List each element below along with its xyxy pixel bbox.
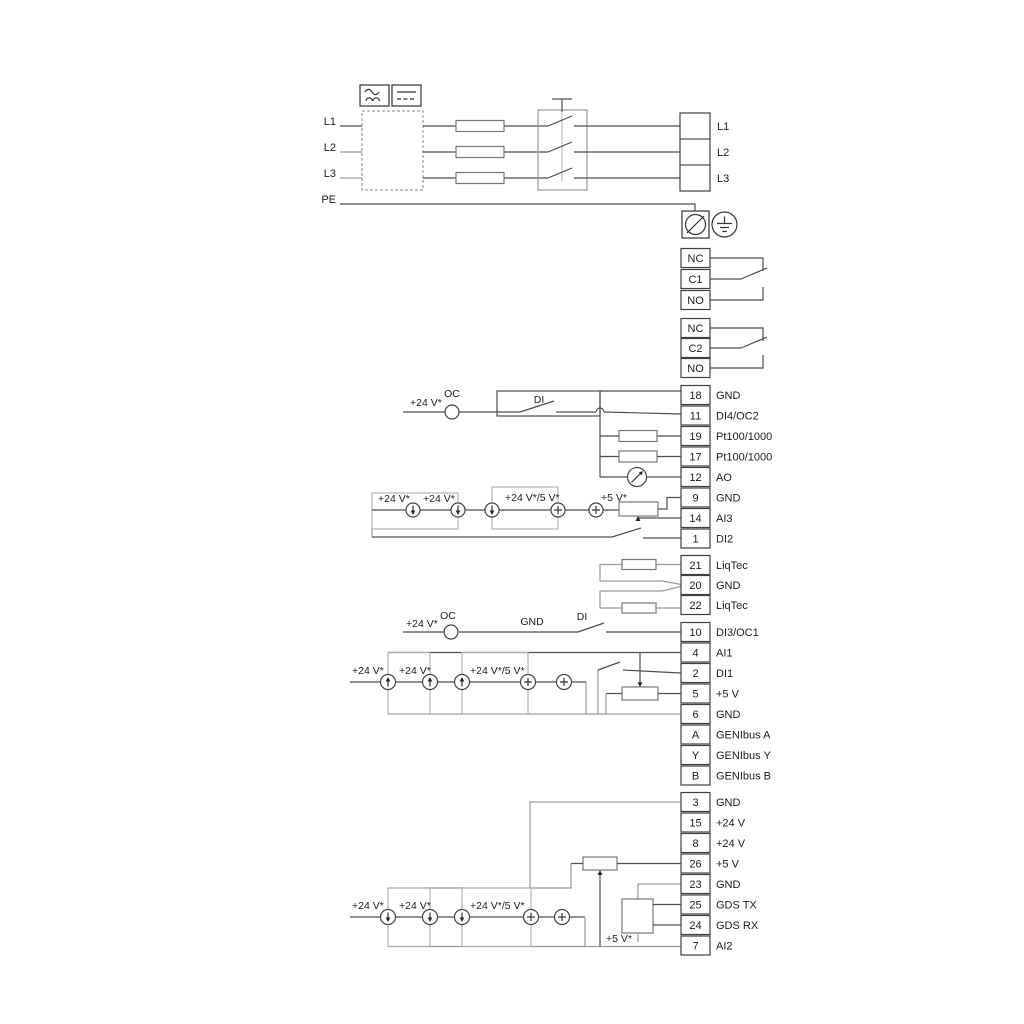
pin-label: +24 V	[716, 838, 746, 850]
pin-number: A	[692, 730, 700, 742]
fuse-l1	[456, 121, 504, 132]
current-source-icon	[381, 675, 396, 690]
screw-slot	[687, 216, 704, 233]
relay1-no-label: NO	[687, 295, 704, 307]
pin-label: AI3	[716, 513, 733, 525]
current-sink-icon	[451, 503, 465, 517]
io2-terminal-block: 10DI3/OC1 4AI1 2DI1 5+5 V 6GND AGENIbus …	[681, 623, 771, 786]
pin-label: LiqTec	[716, 560, 748, 572]
voltage-source-icon	[555, 910, 570, 925]
pin-label: GND	[716, 390, 741, 402]
pin-number: 11	[690, 411, 701, 423]
pin-number: 17	[689, 452, 701, 464]
pin-number: 2	[692, 668, 698, 680]
relay1-no-wire	[710, 287, 763, 300]
plus5v-label: +5 V*	[606, 933, 632, 945]
relay2-nc-label: NC	[688, 323, 704, 335]
pin-number: 5	[692, 689, 698, 701]
pin-label: GENIbus B	[716, 771, 771, 783]
pin-label: GENIbus Y	[716, 750, 771, 762]
earth-icon	[712, 212, 737, 237]
ai2-sensor-options: +24 V* +24 V* +24 V*/5 V*	[350, 857, 681, 947]
pin-label: DI1	[716, 668, 733, 680]
di2-switch-blade	[612, 528, 641, 537]
pin-number: 22	[689, 600, 701, 612]
power-input-section: L1 L2 L3 PE	[321, 85, 737, 238]
relay-1-block: NC C1 NO	[681, 249, 767, 310]
pin-number: 20	[689, 580, 701, 592]
current-sink-icon	[406, 503, 420, 517]
ac-hump-icon	[366, 98, 379, 101]
pin-number: 7	[692, 941, 698, 953]
oc-label: OC	[440, 610, 456, 622]
pin-label: GND	[716, 879, 741, 891]
plus24v-label: +24 V*	[423, 493, 455, 505]
current-sink-icon	[423, 910, 438, 925]
plus24v-5v-label: +24 V*/5 V*	[470, 900, 525, 912]
pin-number: B	[692, 771, 699, 783]
pin-label: +5 V	[716, 859, 740, 871]
potentiometer	[622, 687, 658, 700]
output-l3-label: L3	[717, 173, 729, 185]
pin-number: 14	[689, 513, 701, 525]
pin-number: 4	[692, 648, 698, 660]
relay2-no-wire	[710, 355, 763, 368]
gds-sensor: +5 V*	[606, 884, 681, 945]
pin-number: 6	[692, 709, 698, 721]
pin-number: Y	[692, 750, 700, 762]
voltage-source-icon	[589, 503, 603, 517]
gds-sensor-box	[622, 899, 653, 933]
relay1-nc-wire	[710, 258, 763, 271]
pe-termination	[682, 211, 737, 238]
pin-label: AI1	[716, 648, 733, 660]
dc-symbol-box	[392, 85, 421, 106]
voltage-source-icon	[524, 910, 539, 925]
input-pe-label: PE	[321, 194, 336, 206]
relay1-contact-blade	[741, 268, 767, 279]
pin-label: Pt100/1000	[716, 431, 772, 443]
liqtec-section: 21LiqTec 20GND 22LiqTec	[600, 556, 748, 615]
pin-label: GND	[716, 797, 741, 809]
switch-blade-2	[548, 142, 572, 152]
pin-label: Pt100/1000	[716, 452, 772, 464]
relay2-no-label: NO	[687, 363, 704, 375]
pin-label: +24 V	[716, 818, 746, 830]
pin-label: DI3/OC1	[716, 627, 759, 639]
liqtec-sensor-1	[622, 560, 656, 570]
pin-number: 3	[692, 797, 698, 809]
power-block-outline	[680, 113, 710, 191]
pin-number: 19	[689, 431, 701, 443]
io3-terminal-block: 3GND 15+24 V 8+24 V 26+5 V 23GND 25GDS T…	[681, 793, 759, 956]
wire-to-9	[658, 498, 681, 510]
pin-number: 23	[689, 879, 701, 891]
ac-symbol-box	[360, 85, 389, 106]
pin-label: AI2	[716, 941, 733, 953]
pin-number: 10	[689, 627, 701, 639]
open-collector-icon	[444, 625, 458, 639]
di3-switch-blade	[578, 623, 604, 632]
pin-label: AO	[716, 472, 732, 484]
wire-to-11	[604, 412, 681, 414]
output-l2-label: L2	[717, 147, 729, 159]
pin-number: 26	[689, 859, 701, 871]
pin-label: GND	[716, 580, 741, 592]
emc-filter-box	[360, 85, 423, 190]
filter-outline	[362, 111, 423, 190]
pin-number: 21	[689, 560, 701, 572]
pin-label: GND	[716, 709, 741, 721]
power-terminal-block: L1 L2 L3	[680, 113, 729, 191]
plus24v-label: +24 V*	[352, 665, 384, 677]
input-l3-label: L3	[324, 168, 336, 180]
voltage-source-icon	[521, 675, 536, 690]
input-l1-label: L1	[324, 116, 336, 128]
switch-blade-3	[548, 168, 572, 178]
di-label: DI	[577, 611, 588, 623]
pin-number: 8	[692, 838, 698, 850]
plus24v-label: +24 V*	[378, 493, 410, 505]
potentiometer	[583, 857, 617, 870]
current-sink-icon	[381, 910, 396, 925]
io2-wiring: +24 V* OC GND DI +24 V* +24 V* +24 V*/5 …	[350, 610, 681, 714]
wiring-diagram: L1 L2 L3 PE	[0, 0, 1024, 1024]
switch-blade-1	[548, 116, 572, 126]
voltage-source-icon	[557, 675, 572, 690]
gnd-wire-label: GND	[520, 616, 544, 628]
wire-to-2	[623, 670, 681, 673]
relay1-c1-label: C1	[688, 274, 702, 286]
liqtec-sensor-2	[622, 603, 656, 613]
main-switch	[538, 99, 587, 190]
ac-wave-icon	[365, 89, 379, 94]
pt100-resistor-2	[619, 451, 657, 462]
fuse-l2	[456, 147, 504, 158]
pin-number: 9	[692, 493, 698, 505]
pin-label: LiqTec	[716, 600, 748, 612]
potentiometer	[619, 502, 658, 516]
pin-label: GND	[716, 493, 741, 505]
fuse-l3	[456, 173, 504, 184]
gnd-wire-from-3	[530, 802, 681, 888]
relay2-c2-label: C2	[688, 343, 702, 355]
voltage-source-icon	[551, 503, 565, 517]
ai1-sensor-options: +24 V* +24 V* +24 V*/5 V*	[350, 653, 681, 715]
pin-number: 1	[692, 534, 698, 546]
oc-label: OC	[444, 388, 460, 400]
pin-label: GENIbus A	[716, 730, 771, 742]
plus24v-5v-label: +24 V*/5 V*	[470, 665, 525, 677]
pin-number: 18	[689, 390, 701, 402]
di1-switch-blade	[598, 662, 620, 670]
pin-number: 12	[689, 472, 701, 484]
pin-number: 24	[689, 920, 701, 932]
pin-label: GDS TX	[716, 900, 757, 912]
output-l1-label: L1	[717, 121, 729, 133]
wire-pe	[340, 204, 695, 211]
plus24v-5v-label: +24 V*/5 V*	[505, 492, 560, 504]
relay-2-block: NC C2 NO	[681, 319, 767, 378]
pot-wiper-arrow	[598, 870, 603, 875]
wire-from-23	[638, 884, 681, 899]
plus24v-label: +24 V*	[352, 900, 384, 912]
pin-label: +5 V	[716, 689, 740, 701]
io1-wiring: +24 V* OC DI +24 V* +24 V* +24 V*/5 V*	[372, 388, 681, 538]
input-l2-label: L2	[324, 142, 336, 154]
pin-number: 25	[689, 900, 701, 912]
pot-wiper-arrow	[638, 682, 643, 687]
pin-label: DI4/OC2	[716, 411, 759, 423]
current-source-icon	[455, 675, 470, 690]
relay2-nc-wire	[710, 328, 763, 341]
current-sink-icon	[485, 503, 499, 517]
earth-bars	[717, 217, 732, 232]
wiring-diagram-page: L1 L2 L3 PE	[0, 0, 1024, 1024]
current-sink-icon	[455, 910, 470, 925]
pin-number: 15	[689, 818, 701, 830]
open-collector-icon	[445, 405, 459, 419]
pin-label: DI2	[716, 534, 733, 546]
io3-wiring: +24 V* +24 V* +24 V*/5 V*	[350, 802, 681, 947]
relay2-contact-blade	[741, 337, 767, 348]
pin-label: GDS RX	[716, 920, 759, 932]
pt100-resistor-1	[619, 431, 657, 442]
sensor-option-box	[462, 653, 528, 715]
io1-terminal-block: 18GND 11DI4/OC2 19Pt100/1000 17Pt100/100…	[681, 386, 772, 549]
plus24v-label: +24 V*	[410, 397, 442, 409]
ai3-sensor-options: +24 V* +24 V* +24 V*/5 V* +5 V*	[372, 487, 681, 538]
plus24v-label: +24 V*	[406, 618, 438, 630]
current-source-icon	[423, 675, 438, 690]
relay1-nc-label: NC	[688, 253, 704, 265]
